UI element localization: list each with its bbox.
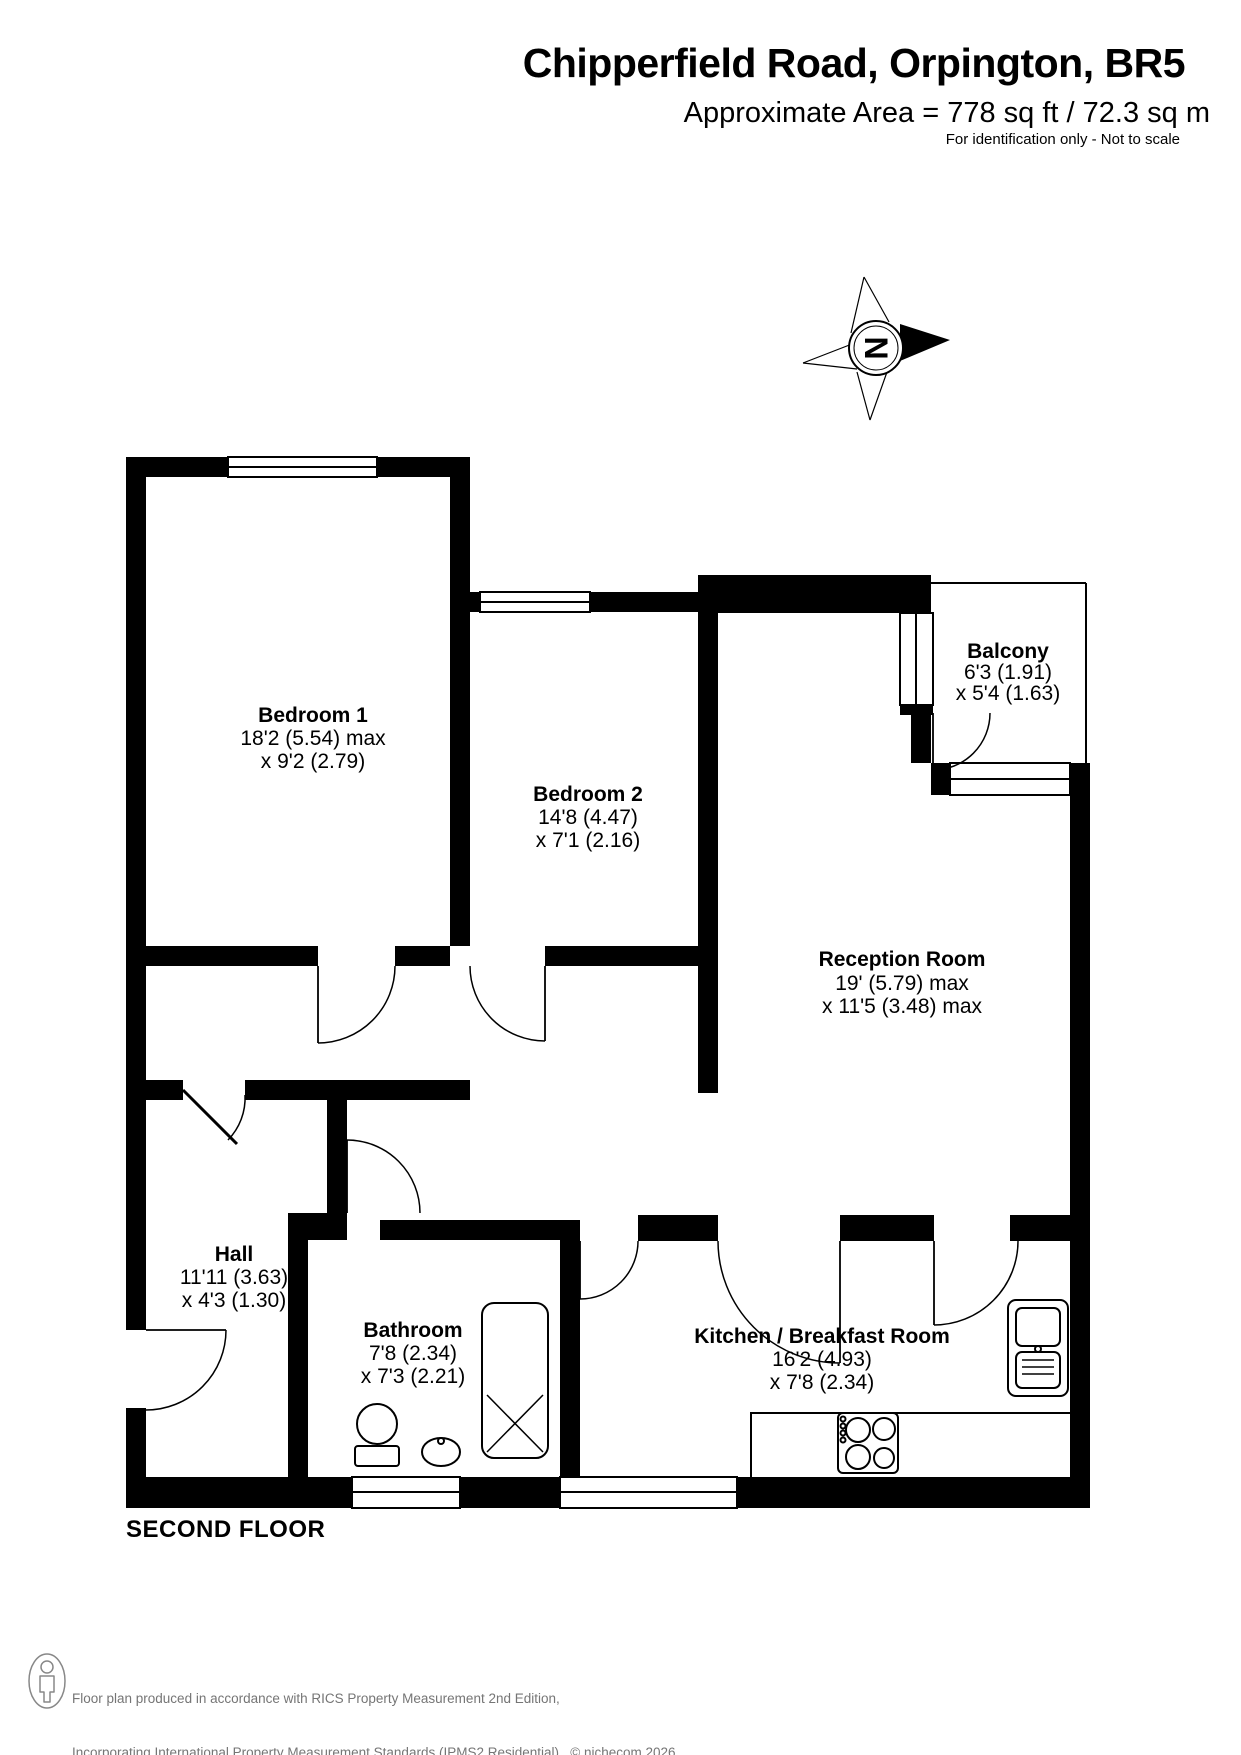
svg-text:Bedroom 1: Bedroom 1: [258, 704, 368, 727]
label-kitchen: Kitchen / Breakfast Room 16'2 (4.93) x 7…: [694, 1325, 950, 1394]
floor-label: SECOND FLOOR: [126, 1516, 325, 1544]
bathroom-door: [347, 1140, 420, 1213]
bathroom-window: [352, 1477, 460, 1508]
label-reception: Reception Room 19' (5.79) max x 11'5 (3.…: [819, 948, 986, 1018]
reception-balcony-window: [950, 763, 1070, 795]
toilet-icon: [355, 1404, 399, 1466]
hob-icon: [838, 1413, 898, 1473]
bedroom2-door: [470, 966, 545, 1041]
label-balcony: Balcony 6'3 (1.91) x 5'4 (1.63): [956, 640, 1060, 705]
svg-text:x 11'5 (3.48) max: x 11'5 (3.48) max: [822, 995, 983, 1018]
footer-text: Floor plan produced in accordance with R…: [72, 1654, 679, 1755]
bedroom2-window: [480, 592, 590, 612]
bedroom1-window: [228, 457, 377, 477]
kitchen-window: [560, 1477, 737, 1508]
svg-text:x 7'3 (2.21): x 7'3 (2.21): [361, 1365, 465, 1388]
kitchen-counter: [751, 1413, 1070, 1477]
label-bedroom1: Bedroom 1 18'2 (5.54) max x 9'2 (2.79): [240, 704, 386, 773]
svg-text:Balcony: Balcony: [967, 640, 1049, 663]
footer-line2: Incorporating International Property Mea…: [72, 1744, 679, 1755]
svg-text:6'3 (1.91): 6'3 (1.91): [964, 661, 1052, 684]
svg-text:7'8 (2.34): 7'8 (2.34): [369, 1342, 457, 1365]
label-bedroom2: Bedroom 2 14'8 (4.47) x 7'1 (2.16): [533, 783, 643, 852]
balcony-door: [933, 713, 990, 770]
svg-text:Bedroom 2: Bedroom 2: [533, 783, 643, 806]
kitchen-right-door: [934, 1241, 1018, 1325]
bedroom1-door: [318, 966, 395, 1043]
person-icon: [28, 1652, 68, 1710]
entry-door: [146, 1330, 226, 1410]
svg-text:16'2 (4.93): 16'2 (4.93): [772, 1348, 872, 1371]
svg-text:18'2 (5.54) max: 18'2 (5.54) max: [240, 727, 386, 750]
svg-text:x 4'3 (1.30): x 4'3 (1.30): [182, 1289, 286, 1312]
svg-text:x 9'2 (2.79): x 9'2 (2.79): [261, 750, 365, 773]
svg-text:Kitchen / Breakfast Room: Kitchen / Breakfast Room: [694, 1325, 950, 1348]
svg-text:x 5'4 (1.63): x 5'4 (1.63): [956, 682, 1060, 705]
label-hall: Hall 11'11 (3.63) x 4'3 (1.30): [180, 1243, 288, 1312]
basin-icon: [422, 1438, 460, 1466]
svg-text:Hall: Hall: [215, 1243, 254, 1266]
copyright: © nichecom 2026.: [563, 1745, 680, 1755]
svg-text:x 7'8 (2.34): x 7'8 (2.34): [770, 1371, 874, 1394]
compass-north-label: N: [858, 336, 894, 359]
footer-line1: Floor plan produced in accordance with R…: [72, 1690, 679, 1708]
svg-text:14'8 (4.47): 14'8 (4.47): [538, 806, 638, 829]
floorplan-page: Chipperfield Road, Orpington, BR5 Approx…: [0, 0, 1241, 1755]
svg-text:11'11 (3.63): 11'11 (3.63): [180, 1266, 288, 1289]
svg-text:Bathroom: Bathroom: [363, 1319, 462, 1342]
kitchen-sink-icon: [1008, 1300, 1068, 1396]
floor-plan: N Bedroom 1 18'2 (5.54) max x 9'2 (2.79)…: [0, 0, 1241, 1755]
svg-text:Reception Room: Reception Room: [819, 948, 986, 971]
kitchen-left-door: [580, 1241, 638, 1299]
svg-text:x 7'1 (2.16): x 7'1 (2.16): [536, 829, 640, 852]
label-bathroom: Bathroom 7'8 (2.34) x 7'3 (2.21): [361, 1319, 465, 1388]
bathtub-icon: [482, 1303, 548, 1458]
svg-text:19' (5.79) max: 19' (5.79) max: [835, 972, 969, 995]
closet-door: [183, 1090, 245, 1144]
compass-icon: N: [803, 277, 950, 420]
balcony-glazed-door: [900, 613, 933, 705]
